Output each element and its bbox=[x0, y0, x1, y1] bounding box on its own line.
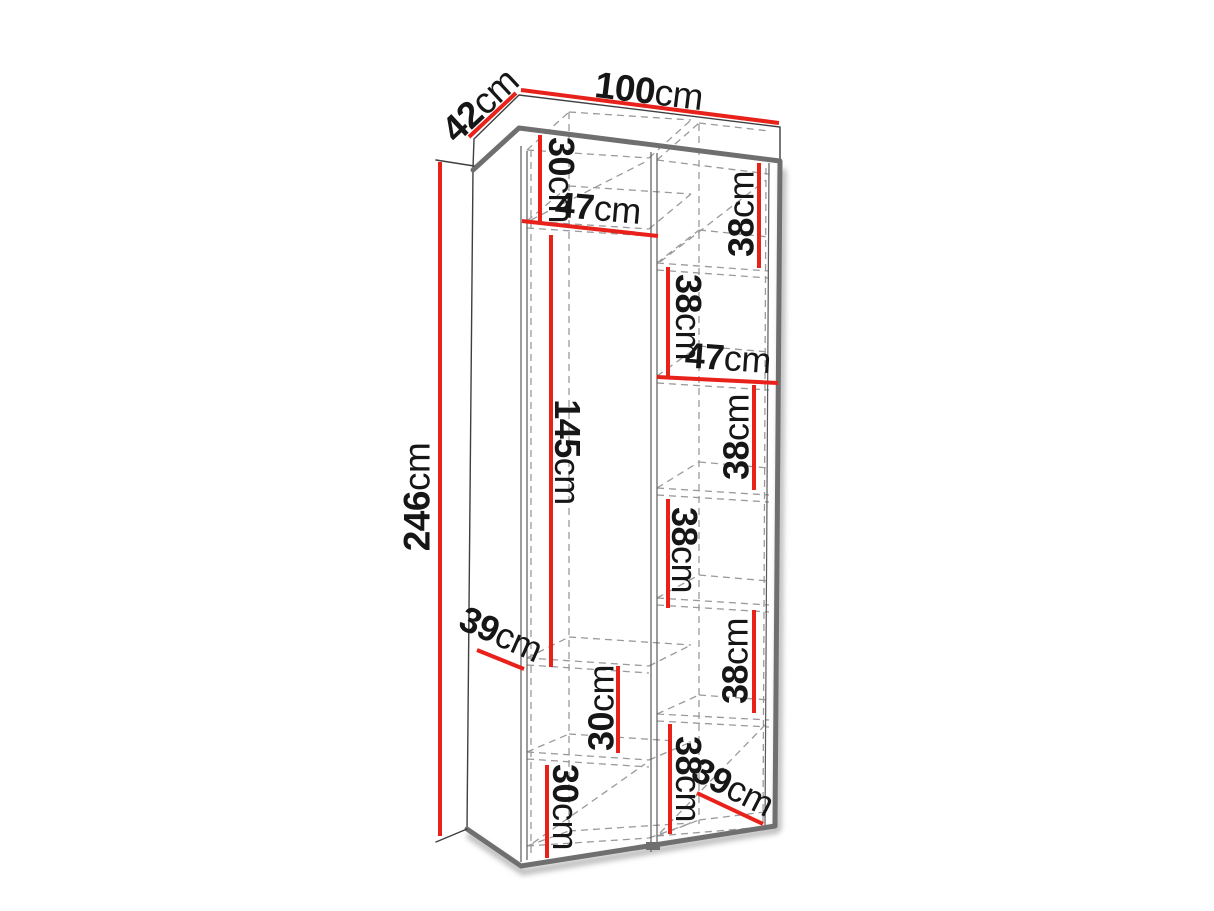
divider-foot bbox=[646, 842, 660, 850]
label-left-column-width: 47cm bbox=[553, 184, 642, 232]
label-height-left: 246cm bbox=[397, 443, 438, 552]
dimension-labels: 42cm 100cm 246cm 30cm 47cm 145cm 39cm 30… bbox=[397, 60, 781, 850]
label-left-middle-section: 145cm bbox=[547, 399, 588, 505]
label-right-column-width: 47cm bbox=[684, 334, 773, 381]
diagram-canvas: 42cm 100cm 246cm 30cm 47cm 145cm 39cm 30… bbox=[0, 0, 1214, 911]
label-right-section-1: 38cm bbox=[720, 171, 761, 257]
wardrobe-dimension-diagram: 42cm 100cm 246cm 30cm 47cm 145cm 39cm 30… bbox=[0, 0, 1214, 911]
label-right-section-3: 38cm bbox=[715, 394, 756, 480]
label-right-section-5: 38cm bbox=[714, 618, 755, 704]
label-right-section-4: 38cm bbox=[664, 507, 705, 593]
label-left-bottom-section: 30cm bbox=[545, 764, 586, 850]
label-left-lower-section: 30cm bbox=[580, 665, 621, 751]
label-width-top: 100cm bbox=[593, 64, 706, 118]
